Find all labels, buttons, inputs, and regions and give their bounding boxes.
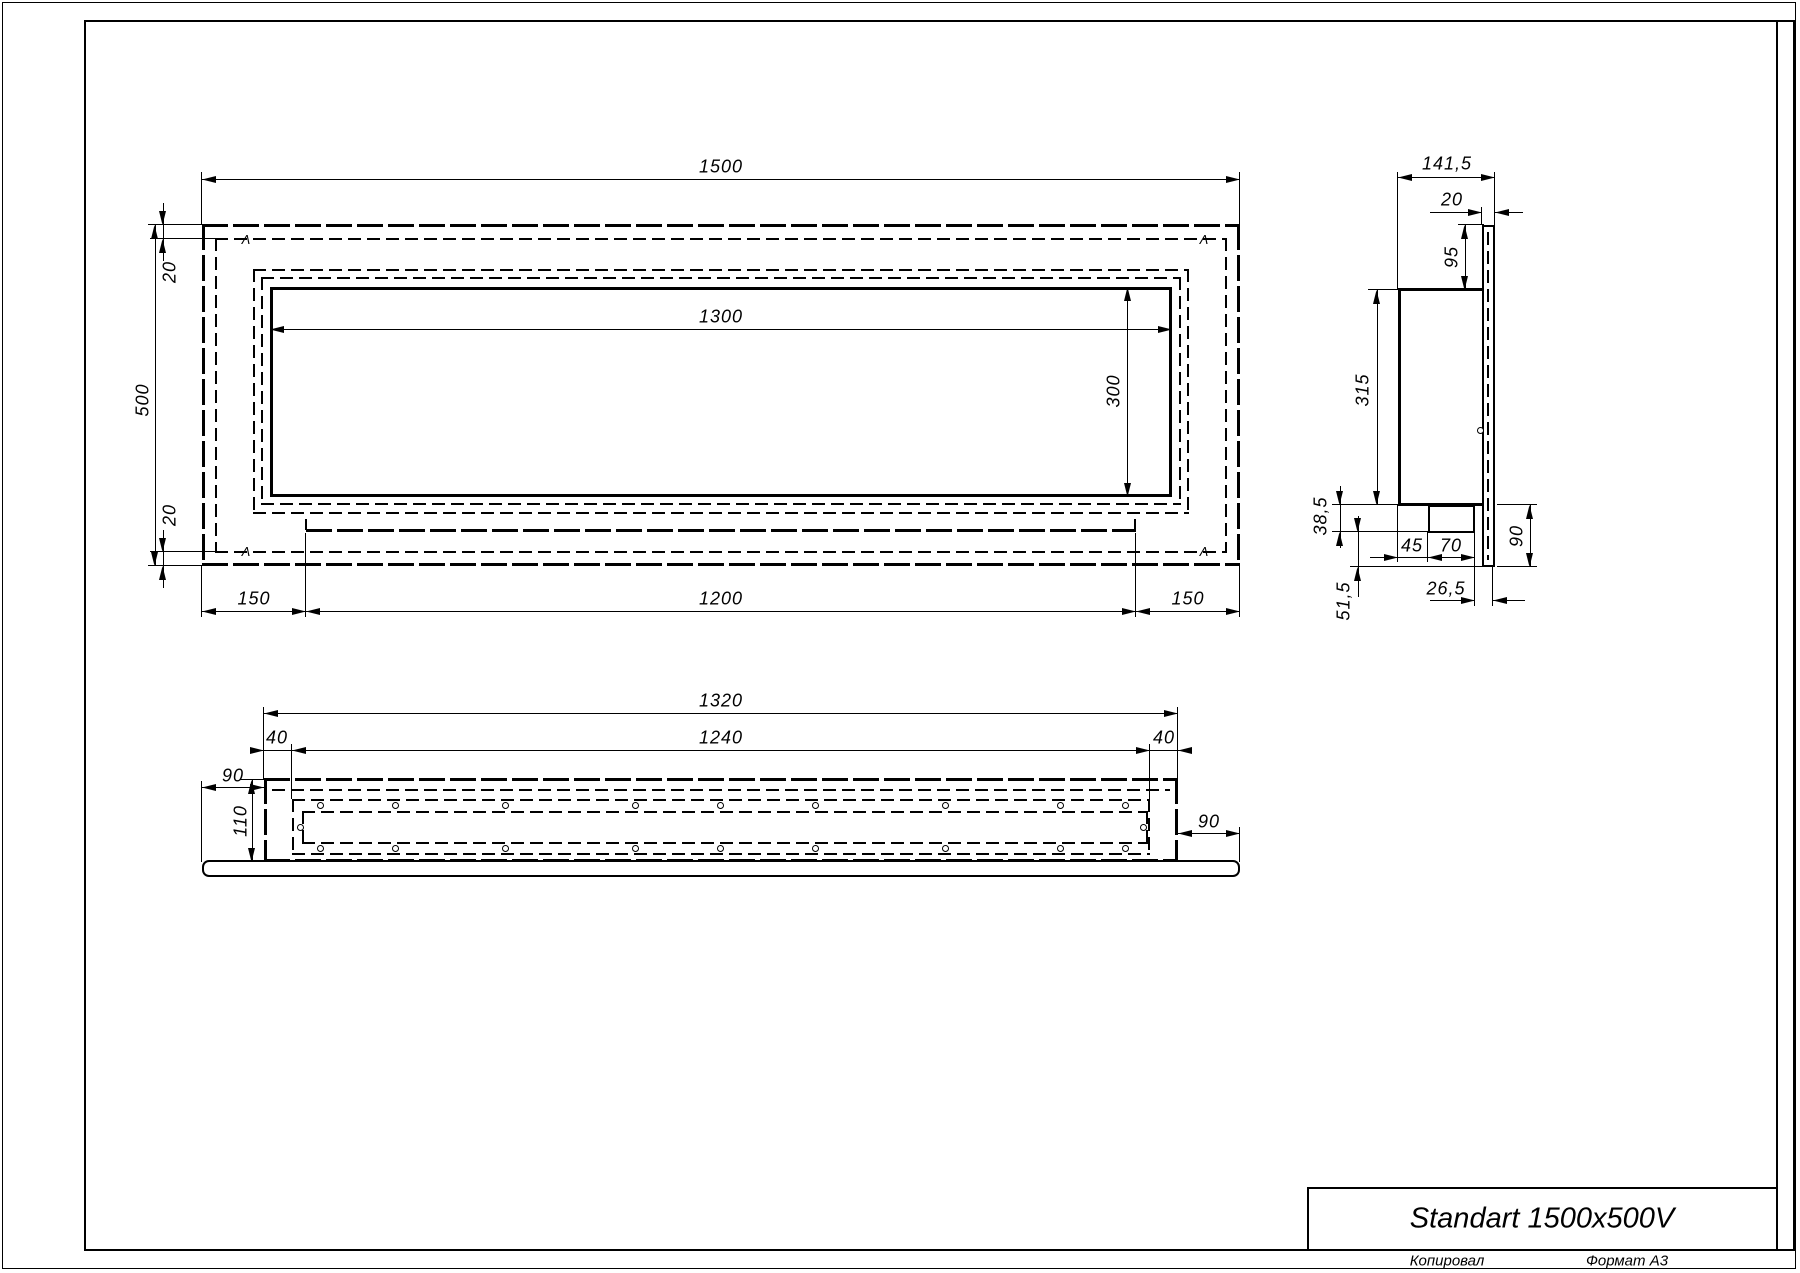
dim-inset-right: 40 <box>1153 728 1175 749</box>
drawing-sheet: Λ Λ Λ Λ 1500 500 20 20 1300 <box>0 0 1800 1273</box>
drawing-line <box>202 224 1240 227</box>
hole-mark <box>1122 845 1129 852</box>
extension-line <box>202 611 1240 612</box>
dim-inner-width: 1240 <box>699 728 743 749</box>
extension-line <box>201 781 202 862</box>
extension-line <box>1481 207 1482 225</box>
extension-line <box>1458 224 1484 225</box>
drawing-line <box>264 778 1178 781</box>
extension-line <box>202 179 1240 180</box>
drawing-line <box>292 799 294 855</box>
drawing-line <box>261 503 1181 505</box>
weld-mark: Λ <box>242 232 251 247</box>
hole-mark <box>317 845 324 852</box>
weld-mark: Λ <box>242 544 251 559</box>
panel-plate-outline <box>202 860 1240 877</box>
hole-mark <box>942 845 949 852</box>
drawing-line <box>202 563 1240 566</box>
dim-margin-left: 150 <box>237 589 270 610</box>
dim-opening-height: 300 <box>1104 374 1125 407</box>
drawing-frame <box>84 20 1795 1251</box>
extension-line <box>270 329 1172 330</box>
dim-margin-right: 150 <box>1171 589 1204 610</box>
hole-mark <box>1122 802 1129 809</box>
extension-line <box>291 744 292 799</box>
hole-mark <box>632 845 639 852</box>
extension-line <box>1377 290 1378 505</box>
dim-tray-width: 70 <box>1440 536 1462 557</box>
dim-body-width: 1320 <box>699 691 743 712</box>
extension-line <box>1494 172 1495 225</box>
drawing-line <box>272 789 1170 791</box>
hole-mark <box>1140 824 1147 831</box>
dim-depth: 110 <box>231 805 252 837</box>
extension-line <box>1398 177 1495 178</box>
dim-overhang-left: 90 <box>222 766 244 787</box>
drawing-line <box>1398 288 1482 291</box>
hole-mark <box>717 845 724 852</box>
drawing-line <box>306 529 1136 532</box>
drawing-line <box>1187 269 1189 514</box>
hole-mark <box>812 802 819 809</box>
hole-mark <box>392 802 399 809</box>
drawing-line <box>261 277 263 505</box>
dim-inner-width: 1200 <box>699 589 743 610</box>
drawing-line <box>215 238 217 553</box>
extension-line <box>1149 744 1150 799</box>
hole-mark <box>297 824 304 831</box>
drawing-line <box>1148 799 1150 855</box>
drawing-line <box>202 224 205 566</box>
hole-mark <box>1057 845 1064 852</box>
tray-outline <box>1428 505 1475 533</box>
weld-mark: Λ <box>1200 232 1209 247</box>
dim-front-height: 500 <box>133 383 154 416</box>
dim-depth: 141,5 <box>1422 154 1472 175</box>
dim-inset-left: 40 <box>266 728 288 749</box>
weld-mark: Λ <box>1200 544 1209 559</box>
hole-mark <box>1057 802 1064 809</box>
extension-line <box>1127 287 1128 497</box>
frame-column-line <box>1776 20 1778 1251</box>
extension-line <box>264 713 1178 714</box>
drawing-line <box>292 853 1150 855</box>
drawing-line <box>215 238 1227 240</box>
drawing-line <box>253 269 255 514</box>
extension-line <box>150 238 215 239</box>
extension-line <box>155 225 156 566</box>
drawing-line <box>215 551 1227 553</box>
dim-tray-height: 38,5 <box>1311 496 1332 535</box>
hole-mark <box>502 802 509 809</box>
drawing-line <box>305 519 307 530</box>
drawing-line <box>292 799 1150 801</box>
drawing-line <box>1237 224 1240 566</box>
dim-offset-bottom: 20 <box>160 504 181 526</box>
drawing-line <box>1225 238 1227 553</box>
dim-front-width: 1500 <box>699 157 743 178</box>
extension-line <box>1497 566 1537 567</box>
extension-line <box>1135 533 1136 617</box>
dim-tray-to-front: 26,5 <box>1426 579 1465 600</box>
drawing-line <box>1179 277 1181 505</box>
drawing-line <box>1487 232 1489 560</box>
extension-line <box>148 565 202 566</box>
extension-line <box>305 533 306 617</box>
dim-tray-offset: 45 <box>1401 536 1423 557</box>
extension-line <box>1368 289 1398 290</box>
footer-format: Формат А3 <box>1586 1253 1668 1270</box>
extension-line <box>1497 504 1537 505</box>
hole-mark <box>392 845 399 852</box>
hole-mark <box>317 802 324 809</box>
dim-overhang-right: 90 <box>1198 812 1220 833</box>
dim-body-height: 315 <box>1353 373 1374 406</box>
extension-line <box>201 566 202 617</box>
dim-panel-top-height: 95 <box>1442 246 1463 268</box>
hole-mark <box>942 802 949 809</box>
hole-mark <box>717 802 724 809</box>
hole-mark <box>502 845 509 852</box>
hole-mark <box>1477 427 1484 434</box>
dim-opening-width: 1300 <box>699 307 743 328</box>
extension-line <box>1474 532 1475 606</box>
drawing-line <box>1175 778 1178 862</box>
extension-line <box>150 551 215 552</box>
drawing-line <box>261 277 1181 279</box>
dim-panel-bottom-height: 90 <box>1507 525 1528 547</box>
drawing-line <box>302 842 1148 844</box>
footer-copied-by: Копировал <box>1410 1253 1485 1270</box>
extension-line <box>1397 172 1398 290</box>
extension-line <box>1397 505 1398 562</box>
drawing-line <box>264 778 267 862</box>
extension-line <box>1350 566 1482 567</box>
hole-mark <box>632 802 639 809</box>
dim-bottom-height: 51,5 <box>1334 581 1355 620</box>
drawing-line <box>1398 288 1401 506</box>
dim-offset-top: 20 <box>160 261 181 283</box>
extension-line <box>148 224 202 225</box>
extension-line <box>1332 504 1398 505</box>
hole-mark <box>812 845 819 852</box>
product-name: Standart 1500x500V <box>1410 1203 1674 1236</box>
extension-line <box>1332 531 1428 532</box>
drawing-line <box>253 269 1189 271</box>
drawing-line <box>253 512 1189 514</box>
extension-line <box>1239 566 1240 617</box>
extension-line <box>252 750 1190 751</box>
drawing-line <box>1134 519 1136 530</box>
drawing-line <box>302 811 1148 813</box>
dim-panel-thickness: 20 <box>1441 190 1463 211</box>
